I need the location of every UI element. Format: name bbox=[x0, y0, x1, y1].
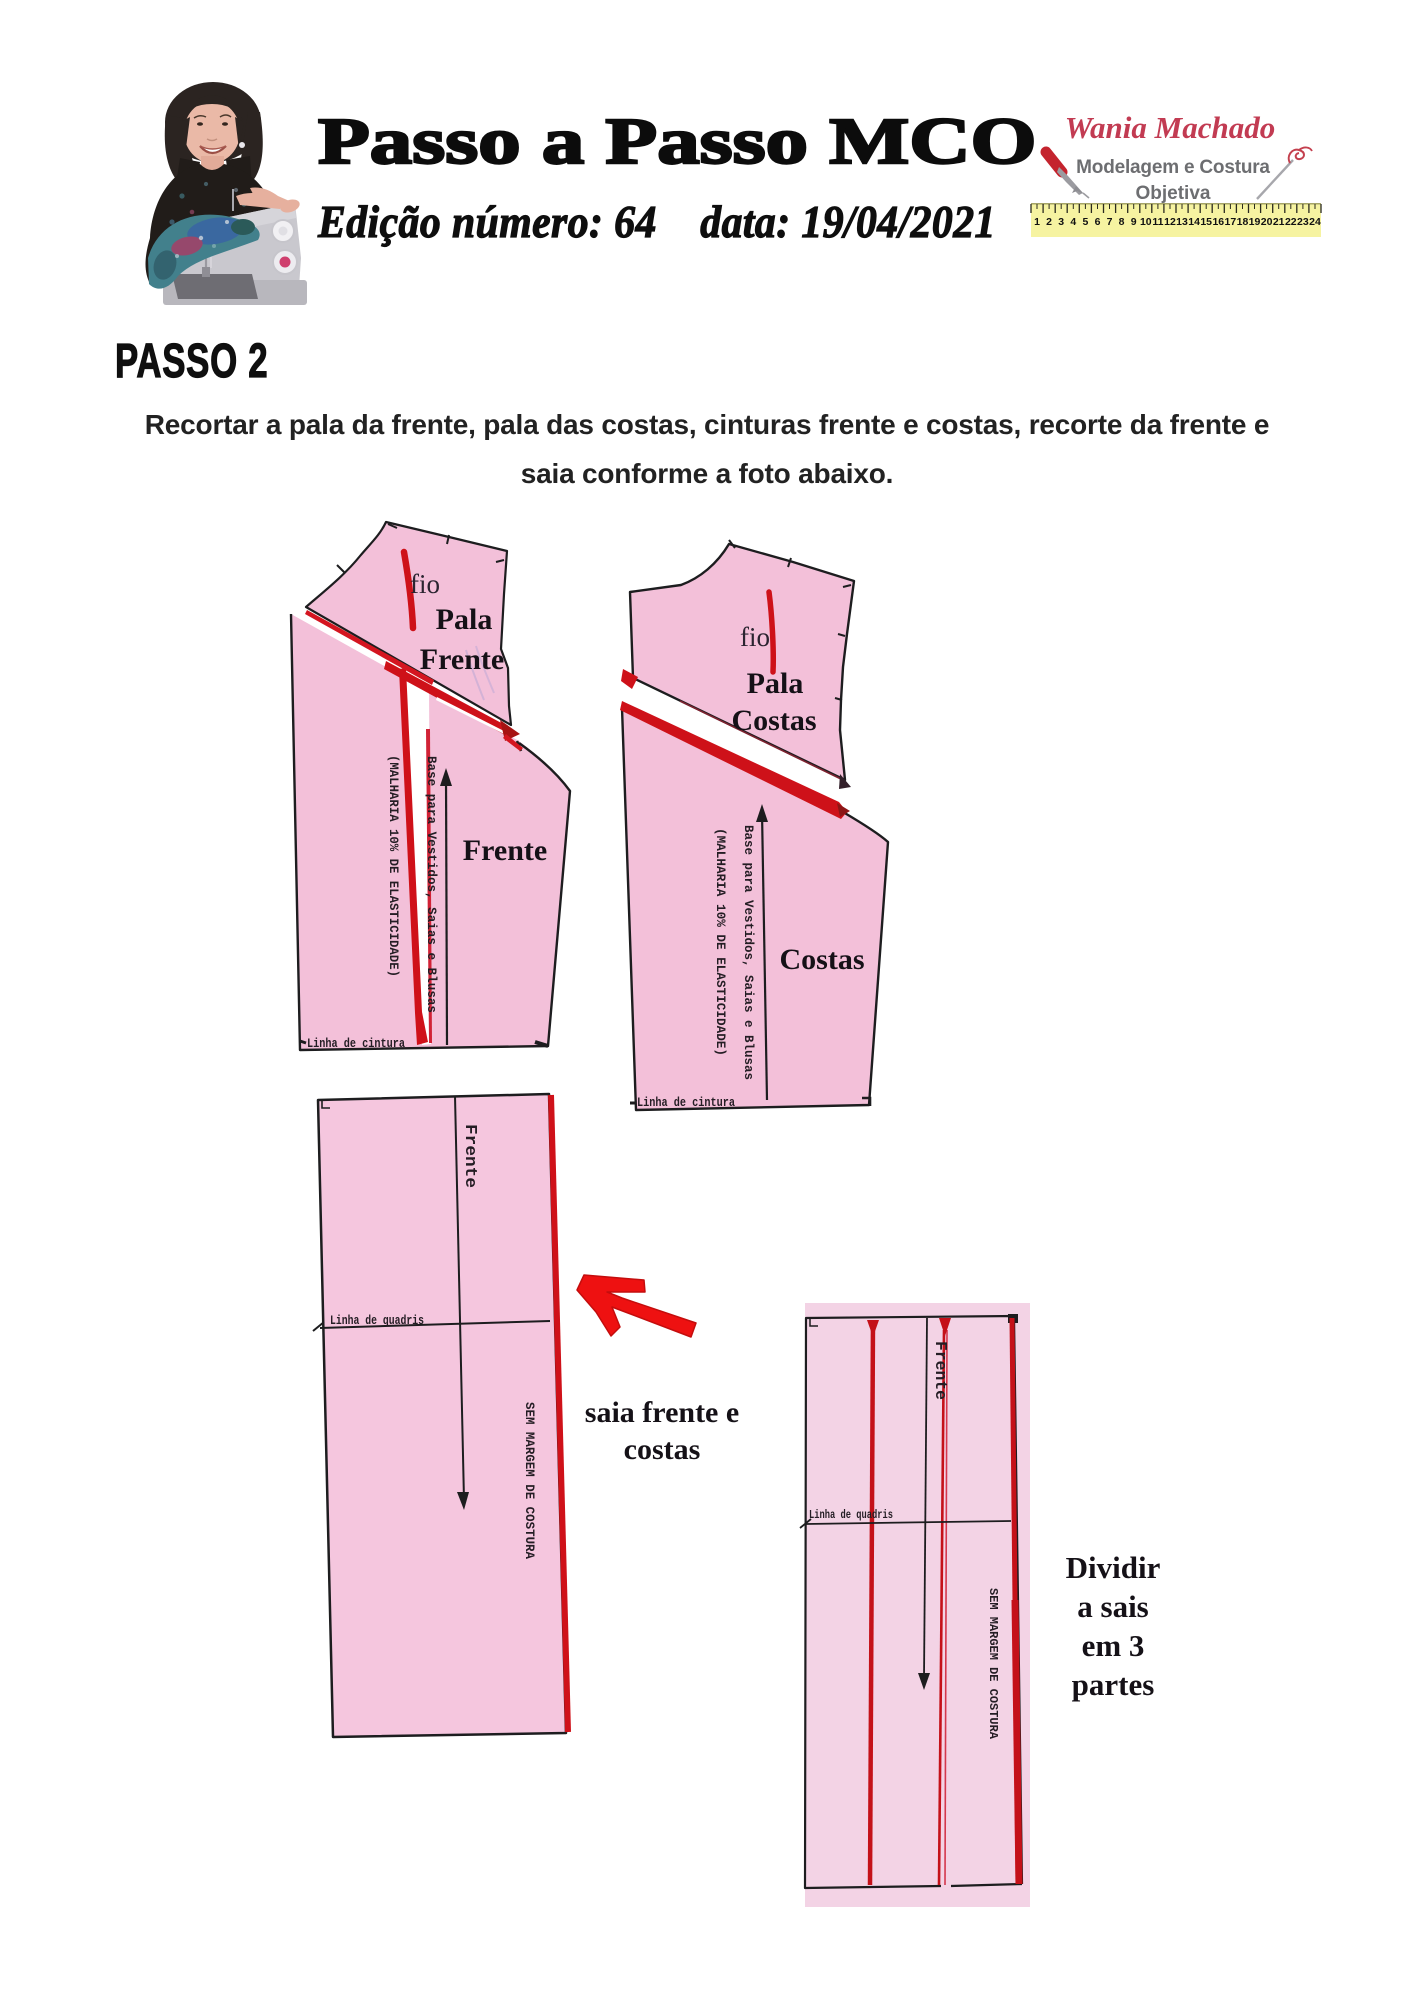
svg-text:Frente: Frente bbox=[460, 1124, 479, 1188]
svg-text:10: 10 bbox=[1140, 216, 1152, 228]
svg-text:20: 20 bbox=[1261, 216, 1273, 228]
svg-text:23: 23 bbox=[1297, 216, 1309, 228]
svg-text:Base para Vestidos, Saias e Bl: Base para Vestidos, Saias e Blusas bbox=[424, 756, 439, 1013]
svg-text:(MALHARIA 10% DE ELASTICIDADE): (MALHARIA 10% DE ELASTICIDADE) bbox=[713, 828, 728, 1056]
svg-text:Linha de quadris: Linha de quadris bbox=[330, 1314, 424, 1328]
svg-text:21: 21 bbox=[1273, 216, 1285, 228]
svg-text:9: 9 bbox=[1131, 216, 1137, 228]
svg-text:6: 6 bbox=[1095, 216, 1101, 228]
svg-text:16: 16 bbox=[1212, 216, 1224, 228]
svg-text:3: 3 bbox=[1058, 216, 1064, 228]
svg-text:1: 1 bbox=[1034, 216, 1040, 228]
svg-text:(MALHARIA 10% DE ELASTICIDADE): (MALHARIA 10% DE ELASTICIDADE) bbox=[386, 755, 401, 977]
svg-text:18: 18 bbox=[1237, 216, 1249, 228]
svg-text:5: 5 bbox=[1082, 216, 1088, 228]
svg-text:15: 15 bbox=[1200, 216, 1212, 228]
svg-text:24: 24 bbox=[1309, 216, 1321, 228]
svg-text:Linha de cintura: Linha de cintura bbox=[637, 1096, 735, 1110]
svg-text:12: 12 bbox=[1164, 216, 1176, 228]
svg-text:4: 4 bbox=[1070, 216, 1076, 228]
svg-text:17: 17 bbox=[1225, 216, 1237, 228]
svg-text:Frente: Frente bbox=[930, 1341, 949, 1400]
svg-text:11: 11 bbox=[1152, 216, 1163, 228]
svg-text:8: 8 bbox=[1119, 216, 1125, 228]
svg-text:2: 2 bbox=[1046, 216, 1052, 228]
svg-text:Linha de cintura: Linha de cintura bbox=[307, 1037, 405, 1051]
svg-text:7: 7 bbox=[1107, 216, 1113, 228]
svg-text:13: 13 bbox=[1176, 216, 1188, 228]
svg-text:19: 19 bbox=[1249, 216, 1261, 228]
svg-text:SEM MARGEM DE COSTURA: SEM MARGEM DE COSTURA bbox=[986, 1588, 1000, 1740]
svg-text:Base para Vestidos, Saias e Bl: Base para Vestidos, Saias e Blusas bbox=[741, 825, 756, 1080]
svg-text:SEM MARGEM DE COSTURA: SEM MARGEM DE COSTURA bbox=[522, 1402, 536, 1559]
svg-text:Linha de quadris: Linha de quadris bbox=[809, 1508, 893, 1522]
svg-text:22: 22 bbox=[1285, 216, 1297, 228]
svg-text:14: 14 bbox=[1188, 216, 1200, 228]
